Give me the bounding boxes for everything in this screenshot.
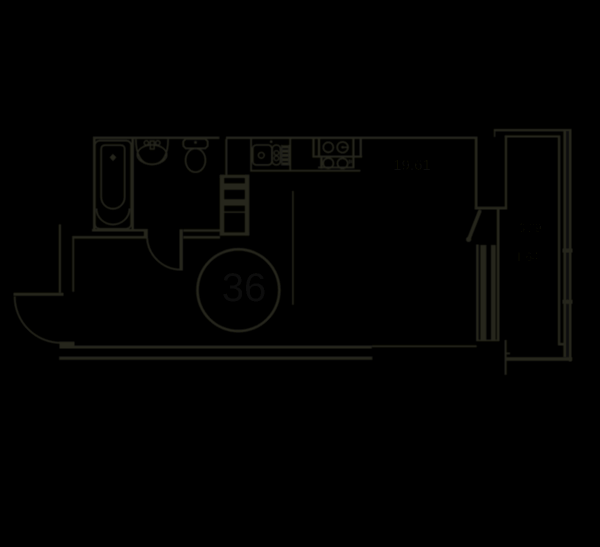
svg-text:1,64: 1,64: [515, 250, 539, 264]
svg-text:19,61: 19,61: [393, 157, 431, 174]
svg-text:3,29: 3,29: [518, 221, 542, 235]
svg-text:36: 36: [222, 266, 267, 310]
